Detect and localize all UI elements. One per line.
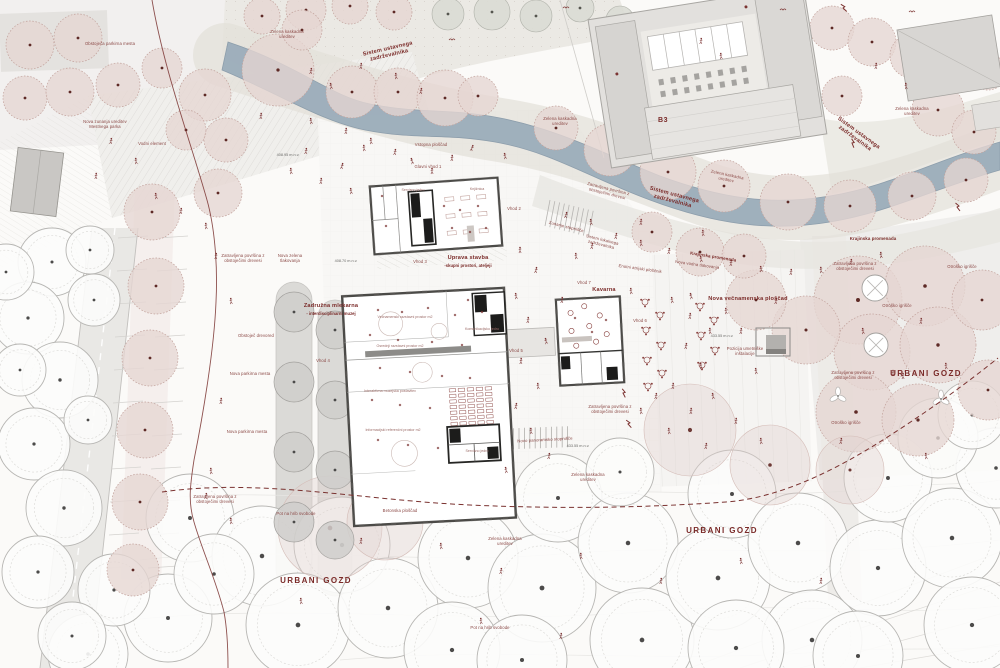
map-label: Komunikacijsko jedro: [465, 327, 499, 331]
tree-trunk-dot: [950, 536, 955, 541]
table-chair: [705, 362, 707, 364]
pink-tree: [888, 172, 936, 220]
seat: [684, 87, 690, 94]
seat: [718, 69, 724, 76]
table-chair: [643, 383, 645, 385]
gray-tree: [316, 521, 354, 559]
pink-tree: [632, 212, 672, 252]
tree-trunk-dot: [225, 139, 228, 142]
tree-trunk-dot: [36, 570, 39, 573]
pink-tree: [534, 106, 578, 150]
table-chair: [642, 357, 644, 359]
tree-trunk-dot: [626, 541, 631, 546]
map-label: - interdisciplinarni muzej: [306, 311, 355, 316]
tree-trunk-dot: [716, 576, 721, 581]
building-shed: [10, 147, 63, 216]
tree-trunk-dot: [856, 654, 860, 658]
seat: [729, 67, 735, 74]
tree-canopy: [0, 344, 46, 396]
tree-trunk-dot: [393, 11, 396, 14]
table-chair: [709, 317, 711, 319]
tree-trunk-dot: [161, 67, 164, 70]
tree-trunk-dot: [132, 569, 135, 572]
table-chair: [640, 299, 642, 301]
tree-trunk-dot: [937, 109, 940, 112]
tree-trunk-dot: [730, 492, 734, 496]
tree-trunk-dot: [723, 185, 726, 188]
tree-trunk-dot: [535, 15, 538, 18]
art-installation: [766, 349, 786, 354]
tree-trunk-dot: [351, 91, 354, 94]
pinkPale-tree: [644, 384, 736, 476]
tree-trunk-dot: [397, 91, 400, 94]
table-chair: [700, 338, 702, 340]
pink-tree: [46, 68, 94, 116]
tree-trunk-dot: [334, 539, 337, 542]
tree-trunk-dot: [886, 476, 890, 480]
tree-trunk-dot: [796, 541, 801, 546]
playground-circle: [864, 333, 888, 357]
table-chair: [651, 383, 653, 385]
tree-trunk-dot: [520, 658, 524, 662]
table-chair: [659, 318, 661, 320]
pink-tree: [117, 402, 173, 458]
tree-trunk-dot: [261, 15, 264, 18]
pink-tree: [194, 169, 242, 217]
seat: [660, 91, 666, 98]
tree-trunk-dot: [447, 13, 450, 16]
tree-trunk-dot: [743, 255, 746, 258]
table-chair: [655, 312, 657, 314]
tree-trunk-dot: [293, 311, 296, 314]
whirligig-hub: [940, 398, 942, 400]
seat: [743, 77, 749, 84]
map-label: Vhod 3: [413, 259, 427, 264]
tree-trunk-dot: [58, 378, 61, 381]
pink-tree: [128, 258, 184, 314]
map-label: Zatravljena površina zobstoječimi dreves…: [833, 261, 876, 271]
map-label: Servisno jedro: [466, 449, 489, 453]
pinkPale-tree: [730, 425, 810, 505]
map-label: Kavarna: [592, 287, 616, 293]
tree-trunk-dot: [296, 623, 301, 628]
pink-tree: [944, 158, 988, 202]
tree-trunk-dot: [970, 623, 974, 627]
table-chair: [710, 347, 712, 349]
table-chair: [703, 303, 705, 305]
table-chair: [661, 376, 663, 378]
tree-trunk-dot: [155, 285, 158, 288]
tree-trunk-dot: [651, 231, 654, 234]
map-label: Pot na hrib svobode: [276, 511, 316, 516]
tree-trunk-dot: [5, 271, 8, 274]
pink-tree: [6, 21, 54, 69]
seat: [731, 79, 737, 86]
tree-trunk-dot: [871, 41, 874, 44]
tree-trunk-dot: [556, 496, 560, 500]
seat: [741, 66, 747, 73]
forest-tree: [38, 602, 106, 668]
gray-tree: [316, 451, 354, 489]
map-label: Servisno jedro: [402, 188, 425, 192]
map-label: URBANI GOZD: [890, 369, 962, 378]
tree-trunk-dot: [24, 97, 27, 100]
forest-tree: [246, 573, 350, 668]
tree-trunk-dot: [848, 468, 851, 471]
tree-trunk-dot: [618, 470, 621, 473]
tree-trunk-dot: [117, 84, 120, 87]
pink-tree: [204, 118, 248, 162]
tree-trunk-dot: [386, 606, 391, 611]
table-chair: [647, 389, 649, 391]
building-part: [474, 295, 487, 313]
map-label: Nova parkirna mesta: [230, 371, 271, 376]
forest-tree: [174, 534, 254, 614]
tree-trunk-dot: [50, 260, 53, 263]
map-label: Otroško igrišče: [947, 264, 977, 269]
map-label: Zadružna mlekarna: [304, 303, 359, 309]
tree-trunk-dot: [876, 566, 880, 570]
tree-trunk-dot: [640, 638, 645, 643]
tree-trunk-dot: [293, 381, 296, 384]
tree-trunk-dot: [987, 389, 990, 392]
forest-tree: [26, 470, 102, 546]
map-label: Otroško igrišče: [831, 420, 861, 425]
seat: [672, 89, 678, 96]
forest-tree: [2, 536, 74, 608]
tree-trunk-dot: [334, 329, 337, 332]
tree-trunk-dot: [965, 179, 968, 182]
tree-trunk-dot: [981, 299, 984, 302]
table-chair: [714, 353, 716, 355]
playground-circle: [862, 275, 888, 301]
map-label: B3: [658, 117, 668, 124]
map-label: -skupni prostori, ateljeji: [444, 263, 491, 268]
map-label: Otroško igrišče: [882, 303, 912, 308]
pink-tree: [124, 184, 180, 240]
pink-tree: [848, 18, 896, 66]
building-part: [606, 367, 618, 381]
tree-trunk-dot: [188, 516, 192, 520]
forest-tree: [64, 396, 112, 444]
tree-trunk-dot: [804, 328, 807, 331]
forest-tree: [0, 408, 70, 480]
table-chair: [696, 332, 698, 334]
map-label: 408.70 m.n.v.: [335, 259, 358, 263]
map-label: Vhod 7: [577, 280, 591, 285]
tree-trunk-dot: [667, 171, 670, 174]
tree-trunk-dot: [768, 463, 772, 467]
tree-trunk-dot: [293, 521, 296, 524]
map-label: URBANI GOZD: [686, 526, 758, 535]
tree-trunk-dot: [26, 316, 29, 319]
map-label: Vhod 5: [509, 348, 523, 353]
table-chair: [660, 348, 662, 350]
building-part: [423, 218, 434, 243]
tree-trunk-dot: [293, 451, 296, 454]
map-label: URBANI GOZD: [280, 576, 352, 585]
table-chair: [657, 370, 659, 372]
tree-trunk-dot: [994, 466, 998, 470]
tree-trunk-dot: [334, 469, 337, 472]
pink-tree: [326, 66, 378, 118]
building-part: [410, 193, 421, 218]
seat: [706, 71, 712, 78]
site-plan-canvas: Sistem ustavnegazadrževalnikaSistem usta…: [0, 0, 1000, 668]
map-label: 433.55 m.n.v.: [711, 334, 734, 338]
tree-trunk-dot: [923, 284, 927, 288]
person-head: [519, 247, 521, 249]
tree-trunk-dot: [734, 646, 738, 650]
table-chair: [649, 327, 651, 329]
pink-tree: [458, 76, 498, 116]
map-label: Nova večnamenska ploščad: [708, 296, 788, 302]
tree-trunk-dot: [936, 343, 939, 346]
table-chair: [713, 323, 715, 325]
building-part: [561, 356, 571, 369]
green-tree: [520, 0, 552, 32]
tree-trunk-dot: [149, 357, 152, 360]
forest-tree: [68, 274, 120, 326]
pink-tree: [142, 48, 182, 88]
table-chair: [644, 305, 646, 307]
table-chair: [650, 357, 652, 359]
forest-tree: [66, 226, 114, 274]
tree-trunk-dot: [87, 419, 90, 422]
forest-tree: [0, 344, 46, 396]
whirligig-hub: [837, 395, 839, 397]
map-label: Zatravljena površina zobstoječimi dreves…: [588, 404, 631, 414]
tree-trunk-dot: [787, 201, 790, 204]
table-chair: [663, 312, 665, 314]
map-label: Interaktivna muzejska postavitev: [364, 389, 416, 393]
tree-trunk-dot: [810, 638, 815, 643]
table-chair: [664, 342, 666, 344]
tree-trunk-dot: [477, 95, 480, 98]
tree-trunk-dot: [540, 586, 545, 591]
tree-trunk-dot: [276, 68, 279, 71]
forest-tree: [578, 493, 678, 593]
map-label: Zatravljena površina zobstoječimi dreves…: [193, 494, 236, 504]
map-label: 433.55 m.n.v.: [567, 444, 590, 448]
tree-trunk-dot: [151, 211, 154, 214]
tree-trunk-dot: [831, 27, 834, 30]
tree-trunk-dot: [77, 37, 80, 40]
tree-trunk-dot: [139, 501, 142, 504]
pink-tree: [374, 68, 422, 116]
map-label: 408.95 m.n.v.: [277, 153, 300, 157]
seat: [708, 83, 714, 90]
gray-tree: [274, 502, 314, 542]
building-part: [449, 428, 461, 443]
tree-trunk-dot: [349, 5, 352, 8]
tree-trunk-dot: [973, 131, 976, 134]
map-label: Nova parkirna mesta: [227, 429, 268, 434]
map-label: Zatravljena površina zobstoječimi dreves…: [831, 370, 874, 380]
tree-trunk-dot: [89, 249, 92, 252]
pink-tree: [698, 160, 750, 212]
map-label: Vhod 2: [507, 206, 521, 211]
table-chair: [701, 368, 703, 370]
building-part: [972, 100, 1000, 131]
table-chair: [648, 299, 650, 301]
pink-tree: [3, 76, 47, 120]
table-chair: [717, 317, 719, 319]
seat: [696, 85, 702, 92]
map-label: Knjižnica: [470, 187, 484, 191]
map-label: Glavni vhod 1: [415, 164, 442, 169]
tree-trunk-dot: [466, 556, 471, 561]
map-label: Krajinska promenada: [850, 236, 897, 241]
pink-tree: [824, 180, 876, 232]
tree-canopy: [246, 573, 350, 668]
tree-trunk-dot: [69, 91, 72, 94]
table-chair: [656, 342, 658, 344]
pink-tree: [822, 76, 862, 116]
seat: [694, 73, 700, 80]
building-part: [467, 225, 475, 241]
pink-tree: [96, 63, 140, 107]
tree-trunk-dot: [70, 634, 73, 637]
green-tree: [432, 0, 464, 30]
tree-trunk-dot: [166, 616, 170, 620]
seat: [670, 77, 676, 84]
tree-trunk-dot: [849, 205, 852, 208]
map-label: Vstopna ploščad: [415, 142, 448, 147]
table-chair: [704, 332, 706, 334]
tree-trunk-dot: [856, 298, 860, 302]
tree-trunk-dot: [854, 410, 858, 414]
tree-trunk-dot: [911, 195, 914, 198]
map-label: Pot na hrib svobode: [470, 625, 510, 630]
map-label: Nova zelenatlakovanja: [278, 253, 303, 263]
tree-trunk-dot: [555, 127, 558, 130]
seat: [658, 79, 664, 86]
building-part: [897, 15, 1000, 101]
tree-trunk-dot: [916, 418, 919, 421]
pink-tree: [112, 474, 168, 530]
map-label: Vodni element: [138, 141, 167, 146]
tree-trunk-dot: [144, 429, 147, 432]
table-chair: [718, 347, 720, 349]
pink-tree: [54, 14, 102, 62]
tree-trunk-dot: [444, 97, 447, 100]
pink-tree: [760, 174, 816, 230]
table-chair: [645, 333, 647, 335]
gray-tree: [274, 432, 314, 472]
tree-trunk-dot: [334, 399, 337, 402]
map-label: Obstoječa parkirna mesta: [85, 41, 136, 46]
tree-trunk-dot: [62, 506, 65, 509]
table-chair: [641, 327, 643, 329]
table-chair: [695, 303, 697, 305]
tree-trunk-dot: [32, 442, 35, 445]
map-label: Obstoječ drevored: [238, 333, 274, 338]
map-label: Osrednji razstavni prostor m2: [377, 344, 424, 348]
tree-trunk-dot: [204, 94, 207, 97]
table-chair: [697, 362, 699, 364]
tree-trunk-dot: [93, 299, 96, 302]
building-part: [506, 327, 555, 357]
map-label: Večnamenski razstavni prostor m2: [378, 315, 433, 319]
pink-tree: [107, 544, 159, 596]
table-chair: [699, 309, 701, 311]
site-plan-drawing: Sistem ustavnegazadrževalnikaSistem usta…: [0, 0, 1000, 668]
seat: [719, 81, 725, 88]
building-kavarna: [556, 296, 624, 385]
building-part: [487, 446, 499, 459]
tree-trunk-dot: [19, 369, 22, 372]
map-label: Uprava stavba: [448, 255, 490, 261]
tree-trunk-dot: [688, 428, 692, 432]
pink-tree: [122, 330, 178, 386]
map-label: Vhod 6: [633, 318, 647, 323]
tree-trunk-dot: [217, 192, 220, 195]
gray-tree: [274, 362, 314, 402]
map-label: Zatravljena površina zobstoječimi dreves…: [221, 253, 264, 263]
map-label: Informacijski referenčni prostor m2: [365, 428, 420, 432]
tree-trunk-dot: [579, 7, 582, 10]
tree-trunk-dot: [260, 554, 265, 559]
pink-tree: [810, 6, 854, 50]
tree-trunk-dot: [491, 11, 494, 14]
tree-trunk-dot: [841, 95, 844, 98]
table-chair: [646, 363, 648, 365]
table-chair: [665, 370, 667, 372]
tree-trunk-dot: [450, 648, 454, 652]
seat: [682, 75, 688, 82]
map-label: Vhod 4: [316, 358, 330, 363]
map-label: Betonska ploščad: [383, 508, 418, 513]
tree-trunk-dot: [29, 44, 32, 47]
